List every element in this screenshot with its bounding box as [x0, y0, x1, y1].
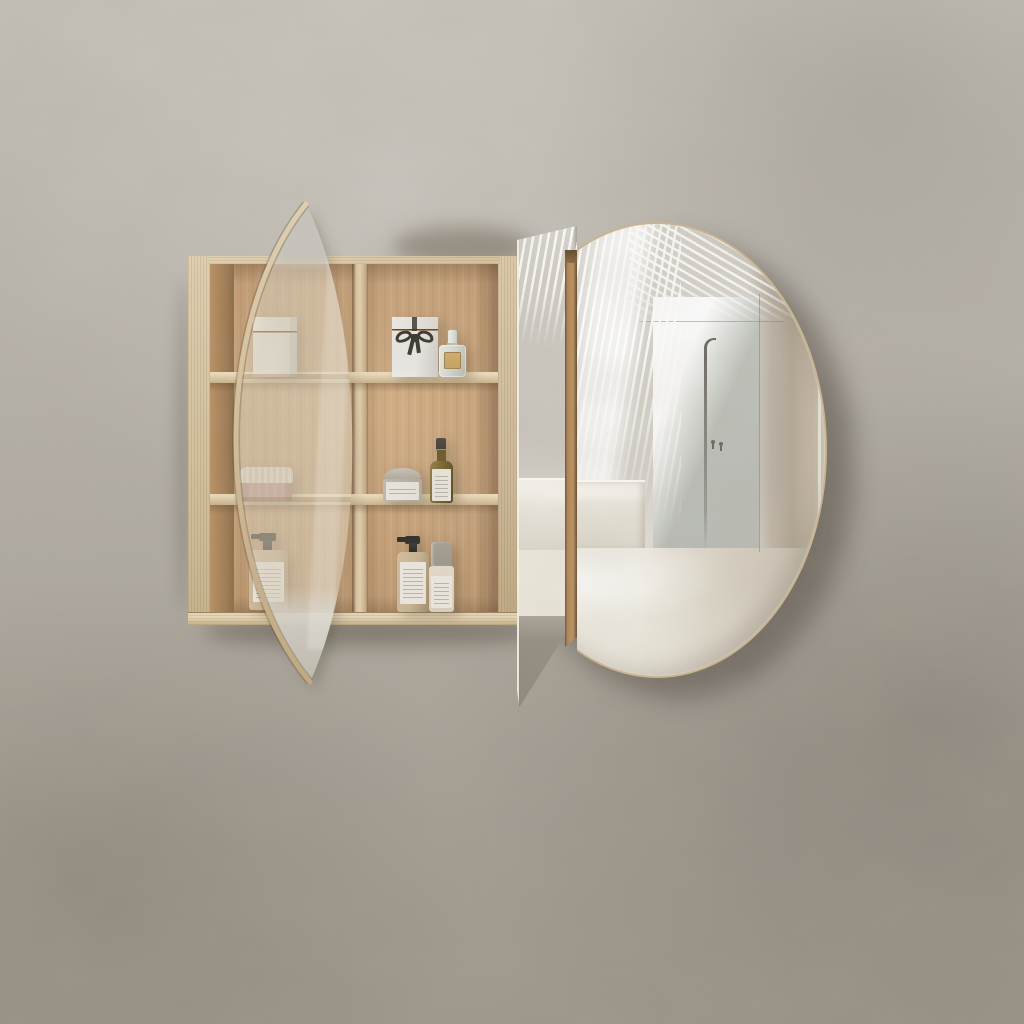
- cabinet-top-edge: [208, 256, 500, 264]
- item-glass-jar: [383, 468, 422, 502]
- item-pump-bottle-right: [397, 536, 429, 612]
- door-handle-batten: [565, 250, 577, 647]
- cabinet-inner-left-wall: [210, 264, 234, 612]
- item-spray-bottle: [429, 542, 454, 612]
- item-pump-bottle-left: [249, 533, 288, 610]
- ribbon-band: [412, 317, 417, 331]
- pump-label: [253, 562, 284, 602]
- bottle-label: [432, 469, 451, 501]
- cabinet-left-edge: [188, 256, 210, 625]
- photo-stage: [0, 0, 1024, 1024]
- spray-cap: [431, 542, 452, 567]
- cabinet: [188, 256, 517, 625]
- jar-lid: [384, 468, 421, 479]
- pump-label: [400, 562, 426, 604]
- perfume-stopper: [448, 330, 457, 344]
- item-olive-bottle: [430, 438, 453, 503]
- jar-lid: [240, 467, 293, 483]
- cabinet-right-edge: [498, 256, 517, 625]
- jar-label: [386, 482, 419, 500]
- cabinet-bottom-edge: [188, 612, 517, 625]
- spray-label: [431, 576, 452, 608]
- box-side-shade: [290, 317, 297, 377]
- jar-body: [241, 483, 292, 501]
- item-gift-box-ribbon: [392, 317, 438, 377]
- item-perfume-bottle: [439, 330, 466, 377]
- perfume-label: [444, 352, 461, 369]
- item-white-box: [253, 317, 297, 377]
- cabinet-center-divider: [352, 264, 368, 612]
- item-ribbed-jar: [240, 467, 293, 501]
